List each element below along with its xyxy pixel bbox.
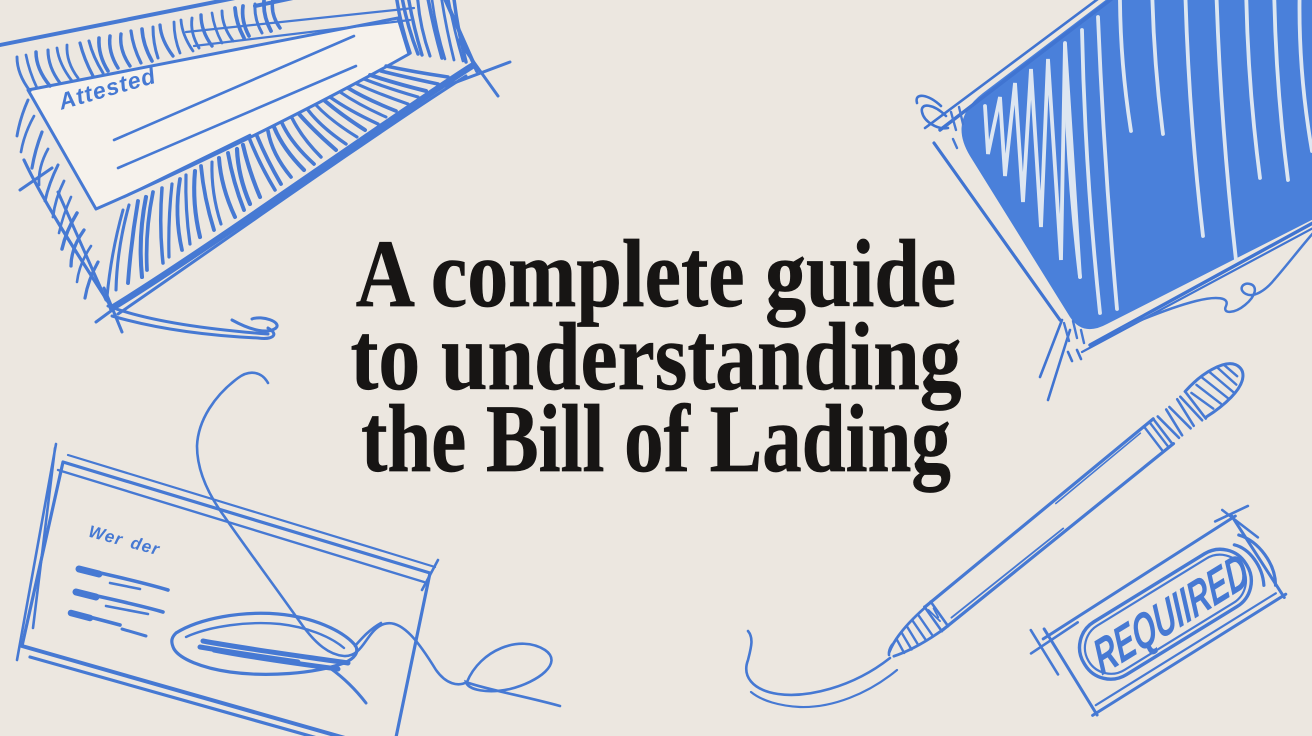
svg-text:Wer der: Wer der — [87, 522, 163, 559]
